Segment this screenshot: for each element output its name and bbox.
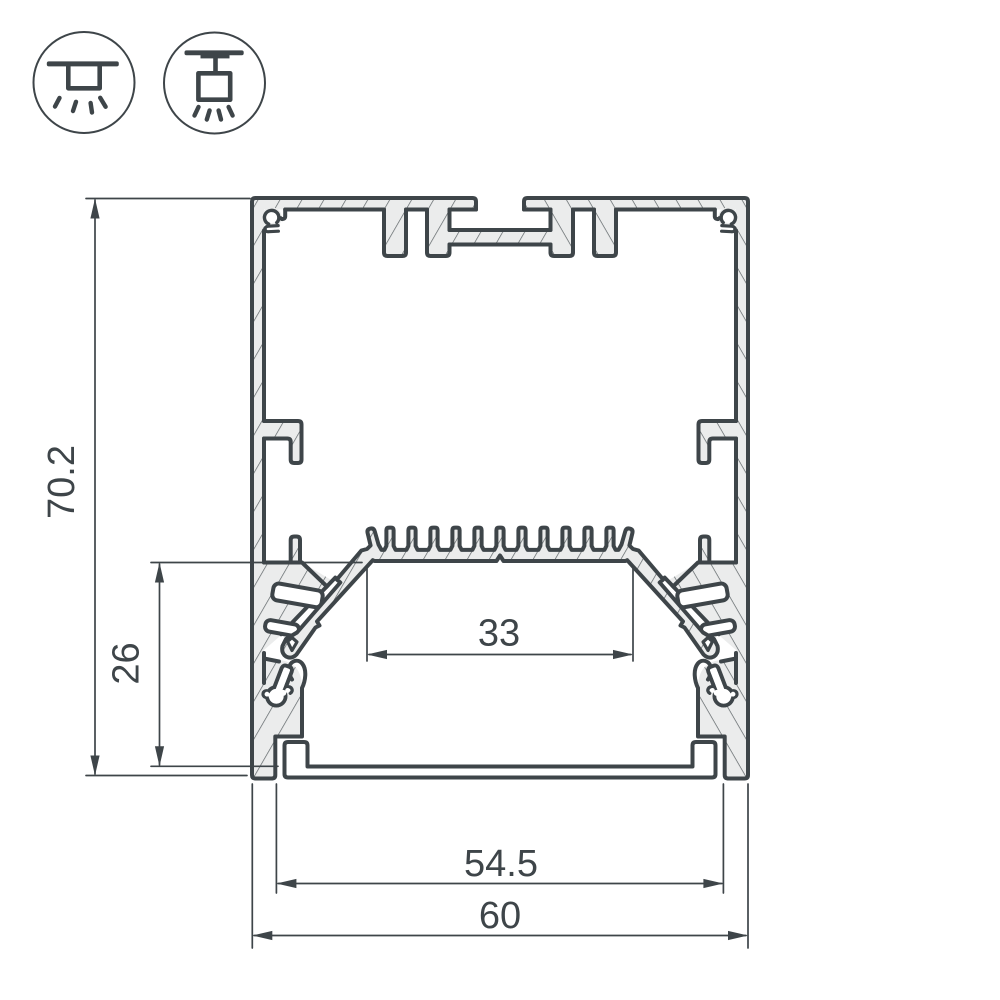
svg-text:26: 26 <box>106 642 148 684</box>
svg-text:54.5: 54.5 <box>464 843 538 885</box>
svg-text:33: 33 <box>478 613 520 655</box>
svg-text:60: 60 <box>479 895 521 937</box>
svg-text:70.2: 70.2 <box>41 445 83 519</box>
